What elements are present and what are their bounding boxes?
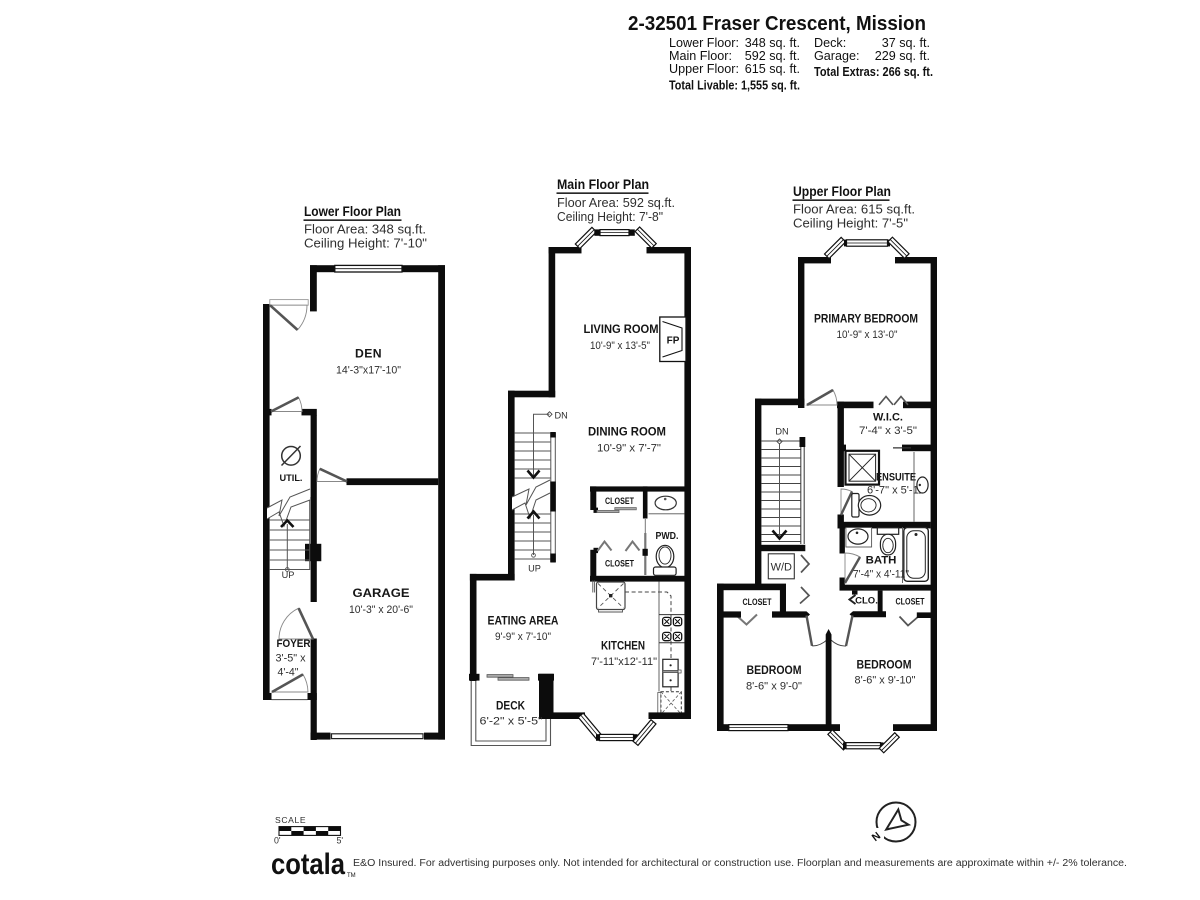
svg-text:CLOSET: CLOSET [896,597,925,607]
svg-text:5': 5' [337,836,344,846]
svg-text:10'-3" x 20'-6": 10'-3" x 20'-6" [349,604,413,616]
svg-text:CLO.: CLO. [855,596,878,607]
svg-text:7'-4" x 3'-5": 7'-4" x 3'-5" [859,425,917,437]
svg-text:Floor Area: 615 sq.ft.: Floor Area: 615 sq.ft. [793,202,915,217]
svg-text:8'-6" x 9'-0": 8'-6" x 9'-0" [746,681,802,693]
svg-text:CLOSET: CLOSET [605,558,634,568]
svg-text:W/D: W/D [771,562,792,574]
svg-text:UP: UP [282,570,295,580]
svg-text:Floor Area: 348 sq.ft.: Floor Area: 348 sq.ft. [304,222,426,237]
svg-text:592 sq. ft.: 592 sq. ft. [745,49,800,63]
svg-text:BEDROOM: BEDROOM [747,663,802,677]
svg-text:UP: UP [528,564,541,574]
svg-text:7'-11"x12'-11": 7'-11"x12'-11" [591,656,657,668]
svg-text:Ceiling Height: 7'-8": Ceiling Height: 7'-8" [557,209,663,224]
svg-text:Total Livable: 1,555 sq. ft.: Total Livable: 1,555 sq. ft. [669,79,800,93]
svg-text:CLOSET: CLOSET [605,496,634,506]
svg-text:BATH: BATH [866,555,897,567]
svg-text:Deck:: Deck: [814,36,846,50]
svg-text:TM: TM [347,873,356,879]
svg-text:CLOSET: CLOSET [743,597,772,607]
svg-text:6'-2" x 5'-5": 6'-2" x 5'-5" [480,716,543,728]
svg-text:Lower Floor:: Lower Floor: [669,36,739,50]
svg-text:GARAGE: GARAGE [353,586,410,600]
svg-text:FP: FP [667,336,680,347]
svg-text:DEN: DEN [355,347,382,361]
svg-text:ENSUITE: ENSUITE [876,472,916,484]
svg-text:Total Extras: 266 sq. ft.: Total Extras: 266 sq. ft. [814,65,933,79]
svg-text:4'-4": 4'-4" [278,667,299,679]
svg-text:Garage:: Garage: [814,49,860,63]
svg-text:0': 0' [274,836,281,846]
svg-text:Upper Floor:: Upper Floor: [669,62,739,76]
svg-text:cotala: cotala [271,848,345,881]
svg-text:Upper Floor Plan: Upper Floor Plan [793,183,891,199]
svg-text:7'-4" x 4'-11": 7'-4" x 4'-11" [853,569,909,581]
svg-text:10'-9" x 13'-0": 10'-9" x 13'-0" [837,329,898,341]
svg-text:KITCHEN: KITCHEN [601,639,645,653]
svg-text:Ceiling Height: 7'-5": Ceiling Height: 7'-5" [793,216,908,231]
svg-text:DINING ROOM: DINING ROOM [588,425,666,439]
svg-text:615 sq. ft.: 615 sq. ft. [745,62,800,76]
svg-text:9'-9" x 7'-10": 9'-9" x 7'-10" [495,631,551,643]
svg-text:UTIL.: UTIL. [280,473,303,483]
svg-text:10'-9" x 13'-5": 10'-9" x 13'-5" [590,340,650,352]
svg-text:Main Floor Plan: Main Floor Plan [557,176,649,192]
svg-text:W.I.C.: W.I.C. [873,412,903,424]
svg-text:8'-6" x 9'-10": 8'-6" x 9'-10" [855,675,916,687]
svg-text:Ceiling Height: 7'-10": Ceiling Height: 7'-10" [304,236,427,251]
svg-text:229 sq. ft.: 229 sq. ft. [875,49,930,63]
svg-text:EATING AREA: EATING AREA [488,614,559,628]
svg-text:Floor Area: 592 sq.ft.: Floor Area: 592 sq.ft. [557,195,675,210]
svg-text:PWD.: PWD. [656,530,679,542]
svg-text:3'-5" x: 3'-5" x [276,653,306,665]
svg-text:10'-9" x 7'-7": 10'-9" x 7'-7" [597,443,661,455]
svg-text:Lower Floor Plan: Lower Floor Plan [304,203,401,219]
svg-text:SCALE: SCALE [275,815,306,825]
svg-text:DECK: DECK [496,699,525,713]
svg-text:2-32501 Fraser Crescent, Missi: 2-32501 Fraser Crescent, Mission [628,12,926,35]
svg-text:14'-3"x17'-10": 14'-3"x17'-10" [336,365,401,377]
svg-text:FOYER: FOYER [277,638,311,650]
svg-text:Main Floor:: Main Floor: [669,49,732,63]
svg-text:DN: DN [555,411,568,421]
svg-text:37 sq. ft.: 37 sq. ft. [882,36,930,50]
svg-text:DN: DN [775,427,788,437]
svg-text:PRIMARY BEDROOM: PRIMARY BEDROOM [814,312,918,326]
svg-text:348 sq. ft.: 348 sq. ft. [745,36,800,50]
svg-text:LIVING ROOM: LIVING ROOM [584,322,659,336]
svg-text:BEDROOM: BEDROOM [857,658,912,672]
svg-text:E&O Insured. For advertising p: E&O Insured. For advertising purposes on… [353,858,1127,869]
